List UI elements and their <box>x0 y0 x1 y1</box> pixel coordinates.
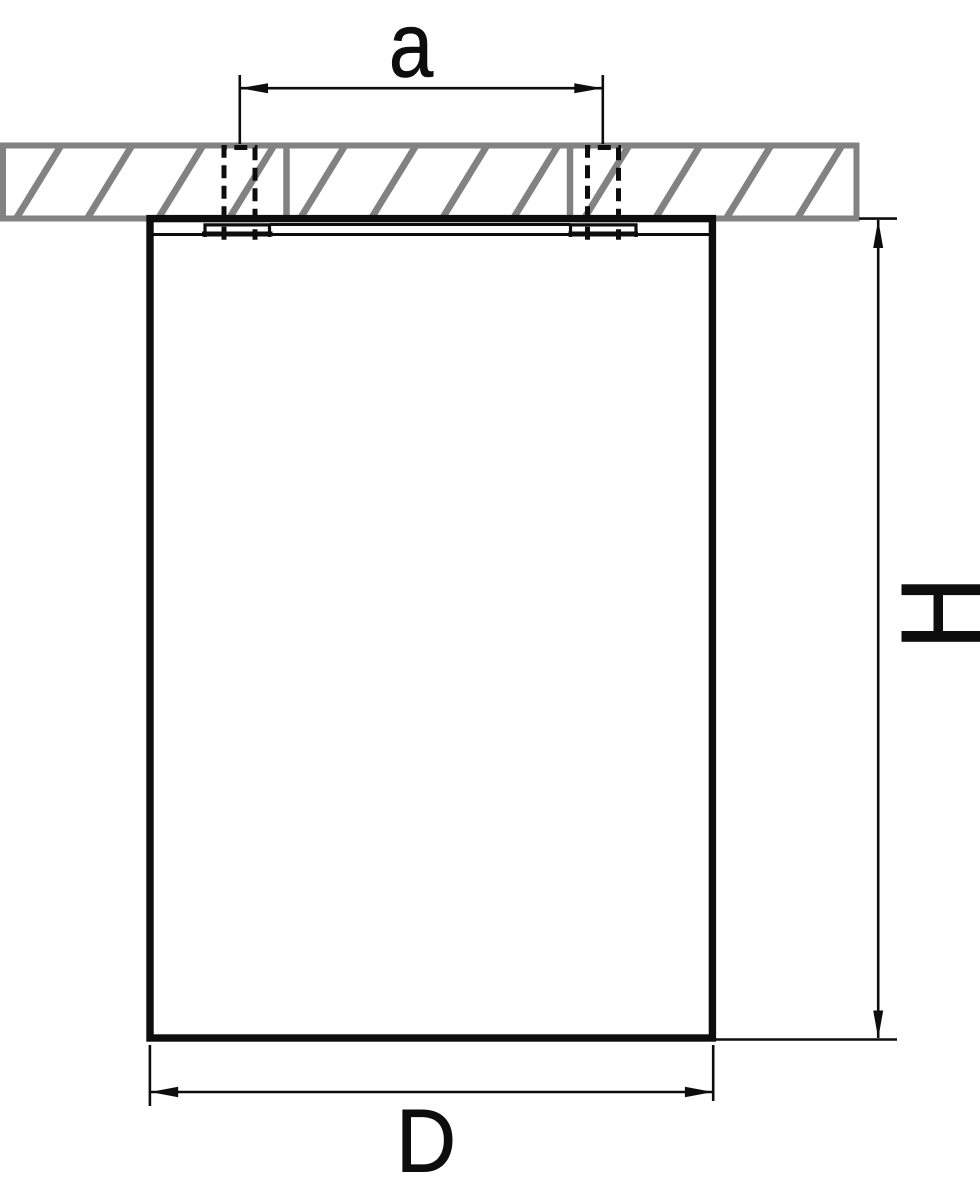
svg-text:D: D <box>396 1092 456 1191</box>
svg-text:a: a <box>389 0 434 97</box>
